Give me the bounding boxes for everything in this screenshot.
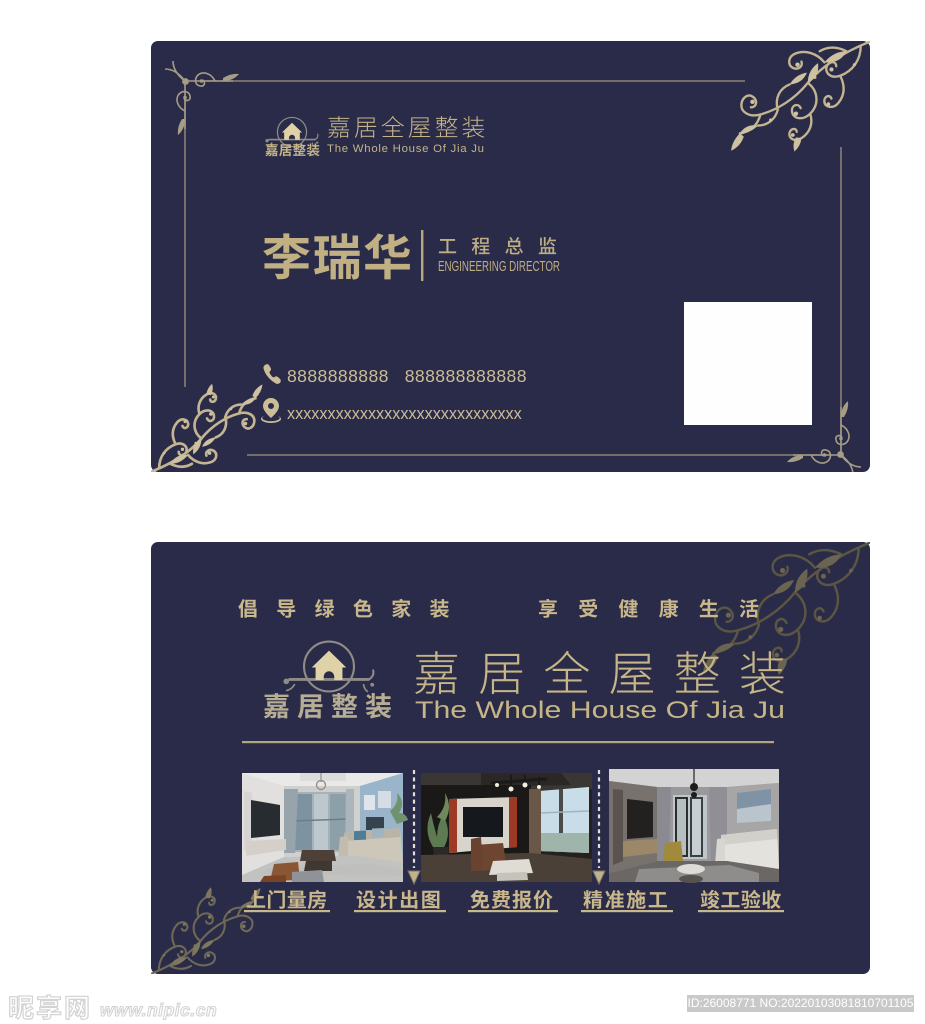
svg-text:The Whole House Of Jia Ju: The Whole House Of Jia Ju <box>415 697 785 724</box>
svg-text:www.nipic.cn: www.nipic.cn <box>100 1000 217 1020</box>
svg-text:The Whole House Of Jia Ju: The Whole House Of Jia Ju <box>327 143 484 155</box>
svg-text:8888888888 888888888888: 8888888888 888888888888 <box>287 366 527 386</box>
svg-text:ENGINEERING DIRECTOR: ENGINEERING DIRECTOR <box>438 259 560 275</box>
svg-text:xxxxxxxxxxxxxxxxxxxxxxxxxxxxx: xxxxxxxxxxxxxxxxxxxxxxxxxxxxx <box>287 405 522 423</box>
